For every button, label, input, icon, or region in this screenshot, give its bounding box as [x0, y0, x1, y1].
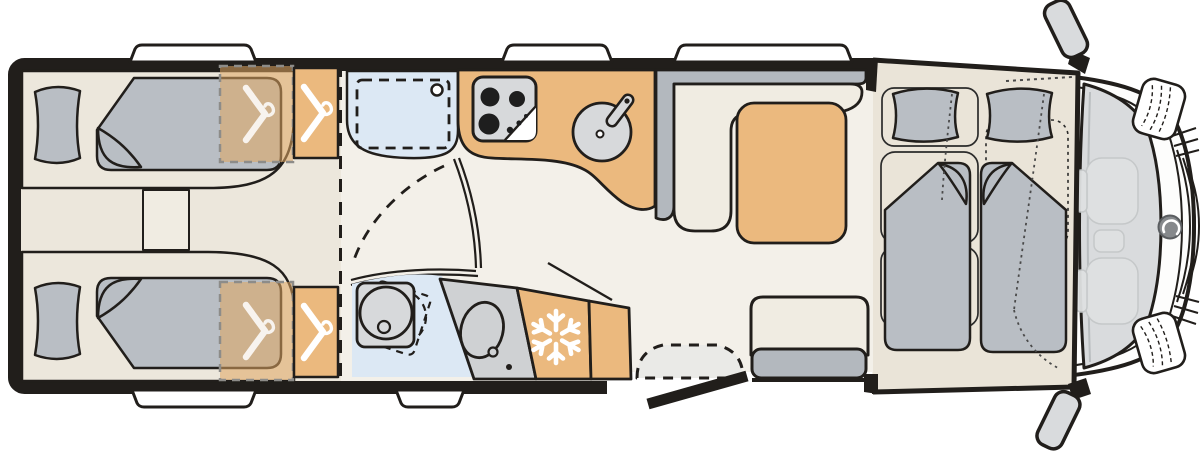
passenger-seat-ghost — [1086, 258, 1138, 324]
burner-large-2 — [479, 114, 500, 135]
side-mirror-top — [1041, 0, 1091, 74]
side-bench-seat — [752, 349, 866, 378]
shower-fitting — [432, 85, 443, 96]
side-bench-backrest — [751, 297, 868, 355]
shower-tray — [347, 71, 458, 158]
wardrobe-overlay-bottom — [220, 282, 293, 380]
basin-drain — [489, 348, 498, 357]
window-top-kitchen — [502, 45, 612, 62]
sink-drain — [597, 131, 604, 138]
window-bottom-washroom — [396, 390, 464, 407]
driver-seat-ghost — [1086, 158, 1138, 224]
faucet-dot — [624, 98, 629, 103]
front-logo — [1159, 216, 1182, 239]
cab-console-ghost — [1094, 230, 1124, 252]
wardrobe-overlay-top — [220, 66, 293, 162]
floorplan-canvas — [0, 0, 1200, 451]
burner-large-1 — [481, 88, 500, 107]
hob — [473, 77, 536, 141]
burner-medium — [509, 91, 525, 107]
toilet-bowl — [360, 287, 412, 339]
wall-end-stub-top — [866, 58, 878, 92]
kitchen-cabinet — [589, 301, 631, 379]
hob-dot-1 — [507, 127, 513, 133]
pillow-top — [35, 87, 80, 163]
floorplan-svg — [0, 0, 1200, 451]
dinette-table — [737, 103, 846, 243]
step-between-beds — [143, 190, 189, 250]
pillow-bottom — [35, 283, 80, 359]
window-bottom-rear — [132, 390, 256, 407]
wall-end-stub-bottom — [864, 374, 878, 394]
hob-dot-2 — [516, 120, 521, 125]
cab-pillow-right — [987, 89, 1052, 142]
entry-step-dashed — [637, 345, 743, 378]
wardrobe-bottom — [294, 287, 338, 377]
side-bench — [751, 297, 868, 378]
hob-dot-3 — [524, 114, 528, 118]
basin-tap-dot — [506, 364, 512, 370]
window-top-rear — [130, 45, 256, 62]
window-top-lounge — [674, 45, 852, 62]
wardrobe-top — [294, 68, 338, 158]
